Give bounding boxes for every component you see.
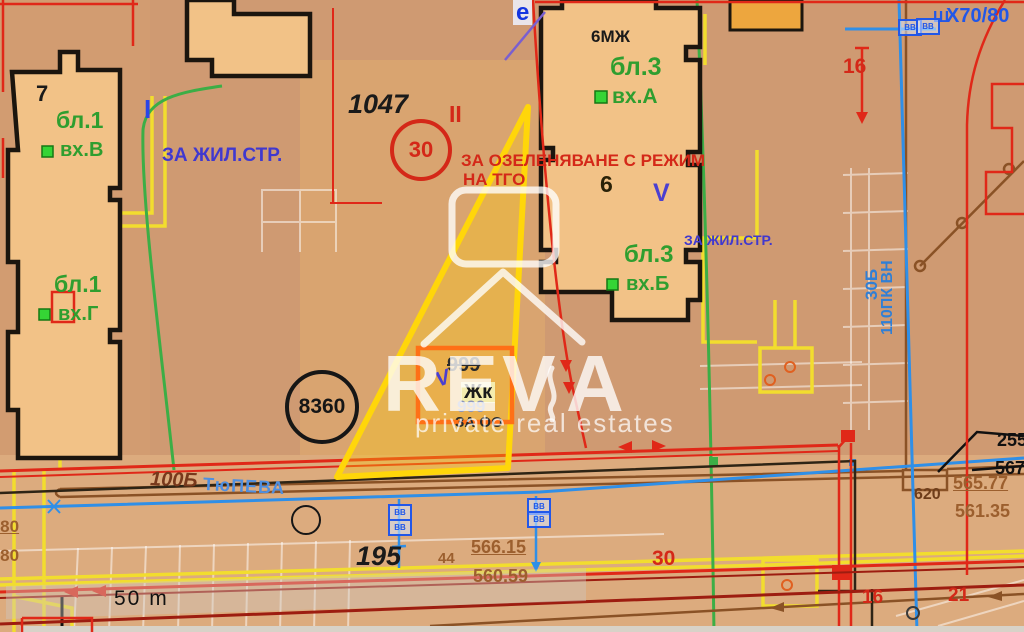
building-block-3 xyxy=(541,0,700,320)
plot-orange-rect xyxy=(418,348,512,422)
map-linework xyxy=(0,0,1024,632)
cadastral-map-canvas[interactable]: 7бл.1вх.Вбл.1вх.ГIЗА ЖИЛ.СТР.1047IIЗА ОЗ… xyxy=(0,0,1024,632)
building-top-right xyxy=(730,0,802,30)
building-block-1 xyxy=(8,52,120,458)
